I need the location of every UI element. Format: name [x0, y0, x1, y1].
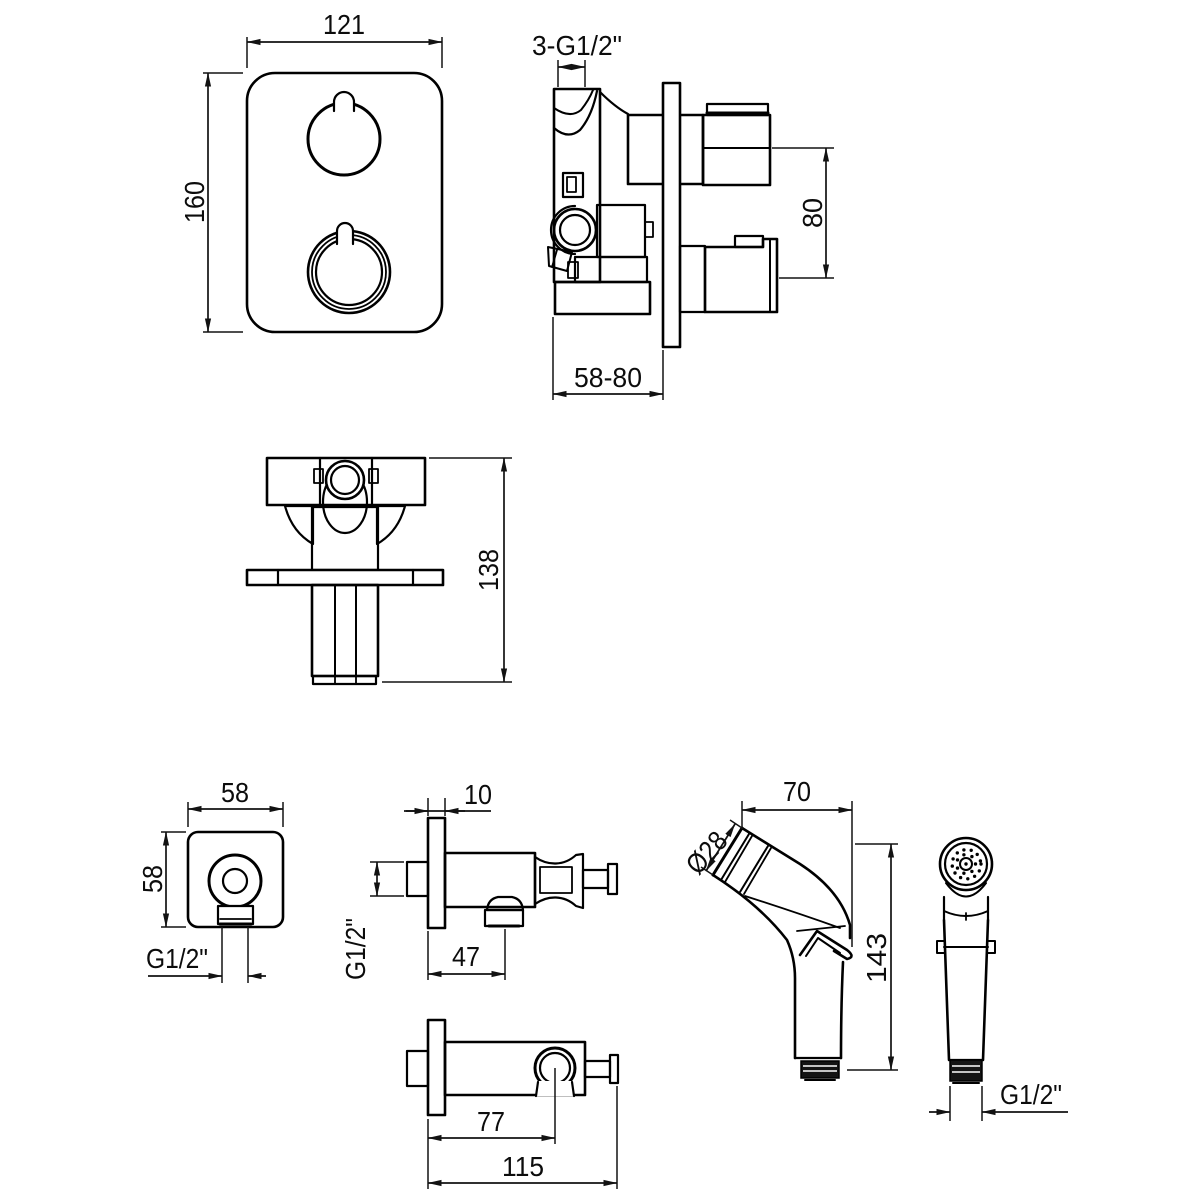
- body-outline-top: [742, 828, 850, 938]
- valve-body-side-view: 3-G1/2" 80 58-80: [532, 30, 834, 400]
- dim-connections-label: 3-G1/2": [532, 30, 622, 61]
- bracket-flange: [428, 818, 445, 928]
- technical-drawing-page: 121 160: [0, 0, 1200, 1200]
- knob-notch-top: [334, 92, 354, 111]
- dim-inlet-thread-label: G1/2": [340, 918, 371, 980]
- wall-bracket-side-view: 10 G1/2" 47: [340, 779, 617, 980]
- cartridge-housing: [312, 507, 378, 570]
- dim-outlet-offset-label: 47: [452, 941, 480, 972]
- clip-seam: [797, 926, 845, 931]
- cartridge-nub: [645, 222, 653, 237]
- body-outline-right: [841, 962, 843, 1058]
- wall-outlet-front-view: 58 58 G1/2": [137, 777, 283, 983]
- dim-plate-width-label: 121: [323, 9, 365, 40]
- valve-body-geometry: [548, 83, 777, 347]
- bracket-inlet-stub: [407, 862, 428, 896]
- lower-housing: [312, 585, 378, 676]
- dim-holder-offset-label: 77: [477, 1106, 505, 1137]
- valve-body-top-view: 138: [247, 458, 512, 684]
- handle-outline-front: [944, 920, 988, 1060]
- dim-head-length-label: 70: [783, 776, 811, 807]
- head-band-3: [740, 846, 768, 892]
- trim-plate-front-view: 121 160: [179, 9, 442, 332]
- handshower-front-geometry: [937, 838, 995, 1083]
- dim-plate-height-label: 160: [179, 181, 210, 223]
- cartridge-block: [597, 205, 645, 257]
- outlet-nozzle: [218, 906, 253, 924]
- outlet-ball-inner: [223, 869, 247, 893]
- holder-pin-cap: [608, 864, 617, 894]
- dim-connection-thread-label: G1/2": [1000, 1079, 1062, 1110]
- holder-pin-top: [585, 1061, 610, 1077]
- trim-plate-geometry: [247, 73, 442, 332]
- bracket-flange-top: [428, 1020, 445, 1115]
- stop-detail-inner: [567, 177, 576, 192]
- dim-outlet-height-label: 58: [137, 865, 168, 893]
- column-tab-right: [369, 469, 378, 483]
- handshower-side-geometry: [713, 828, 852, 1080]
- lower-block: [575, 257, 647, 282]
- thread-connector-front: [950, 1060, 982, 1081]
- base-block: [555, 282, 650, 314]
- head-band-4: [744, 848, 771, 894]
- lower-handle-body: [705, 239, 777, 312]
- lower-handle-tab: [735, 236, 763, 247]
- spray-center-dot: [964, 862, 967, 865]
- handshower-front-dimensions: G1/2": [929, 1079, 1068, 1121]
- dim-outlet-thread-label: G1/2": [146, 943, 208, 974]
- wall-bracket-top-view: 77 115: [407, 1020, 618, 1189]
- bracket-top-dimensions: 77 115: [428, 1068, 617, 1189]
- bracket-top-geometry: [407, 1020, 618, 1115]
- handshower-side-dimensions: 70 Ø28 143: [680, 776, 898, 1070]
- bracket-inlet-stub-top: [407, 1051, 428, 1086]
- volume-knob-mid-ring: [312, 235, 386, 309]
- dim-port-spacing-label: 80: [797, 198, 828, 228]
- holder-spool-waist: [540, 867, 572, 893]
- thermostat-knob-opening: [308, 103, 380, 175]
- column-tab-left: [314, 469, 323, 483]
- dim-outlet-width-label: 58: [221, 777, 249, 808]
- handshower-front-view: G1/2": [929, 838, 1068, 1121]
- dim-flange-thickness-label: 10: [464, 779, 492, 810]
- holder-pin-cap-top: [610, 1055, 618, 1083]
- trim-plate-outline: [247, 73, 442, 332]
- holder-spool: [535, 854, 583, 908]
- inlet-boss-inner: [560, 215, 590, 245]
- wing-left: [285, 506, 313, 544]
- body-inner-seam: [745, 896, 840, 928]
- body-to-block-curve: [600, 92, 628, 114]
- thread-connector-side: [801, 1061, 839, 1078]
- holder-pin: [583, 870, 608, 888]
- upper-handle-body: [703, 115, 770, 185]
- dim-install-depth-label: 58-80: [574, 362, 642, 393]
- volume-knob-inner-ring: [316, 239, 382, 305]
- knob-notch-bottom: [337, 223, 353, 244]
- wall-outlet-geometry: [188, 832, 283, 927]
- dim-valve-length-label: 138: [473, 549, 504, 591]
- outlet-ball-outer: [209, 855, 261, 907]
- technical-drawing-canvas: 121 160: [0, 0, 1200, 1200]
- dim-overall-height-label: 143: [861, 933, 892, 983]
- mounting-plate: [663, 83, 680, 347]
- bracket-side-geometry: [407, 818, 617, 928]
- handshower-side-view: 70 Ø28 143: [680, 776, 898, 1080]
- body-outline-left: [713, 875, 795, 1058]
- valve-top-geometry: [247, 458, 443, 684]
- valve-body-column: [554, 89, 600, 282]
- outlet-nut: [485, 910, 523, 926]
- bracket-body: [445, 853, 535, 907]
- bracket-side-dimensions: 10 G1/2" 47: [340, 779, 505, 980]
- lower-handle-hub: [680, 246, 705, 312]
- inlet-cast-curve-2: [554, 90, 593, 114]
- wing-right: [377, 506, 405, 544]
- dim-overall-length-label: 115: [502, 1151, 544, 1182]
